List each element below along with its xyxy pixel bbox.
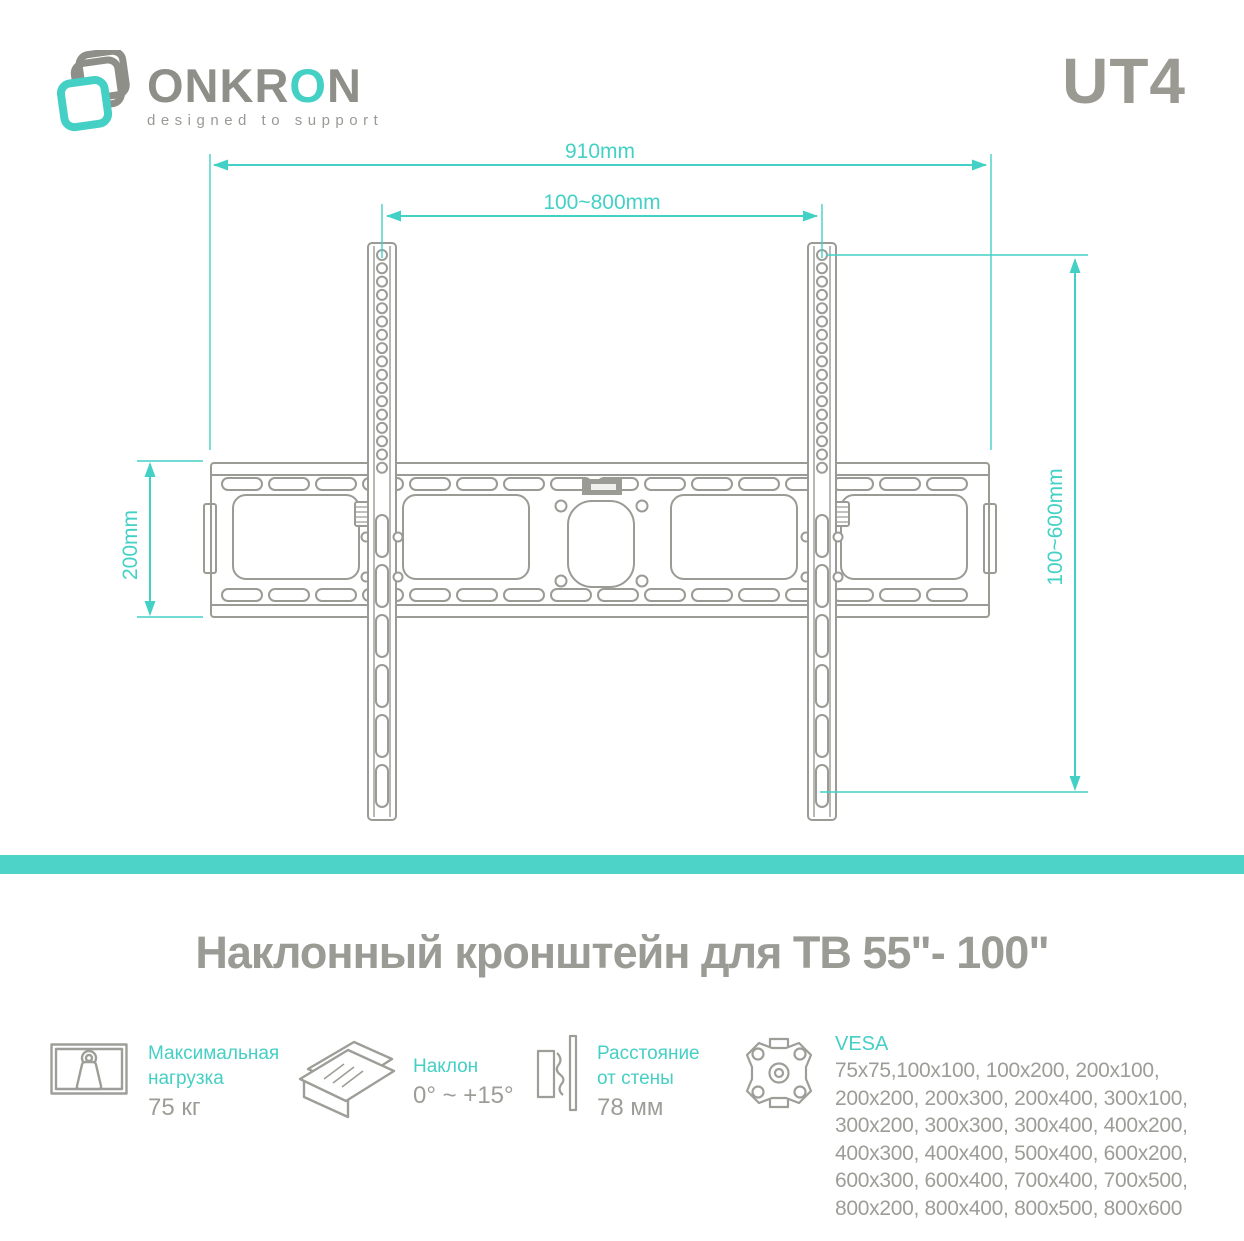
max-load-label: Максимальная нагрузка bbox=[148, 1041, 279, 1091]
wall-distance-label: Расстояние от стены bbox=[597, 1041, 700, 1091]
max-load-value: 75 кг bbox=[148, 1094, 279, 1122]
dim-label-plate-height: 200mm bbox=[119, 510, 142, 580]
tilt-value: 0° ~ +15° bbox=[413, 1082, 514, 1110]
dim-label-total-width: 910mm bbox=[565, 140, 635, 163]
vesa-label: VESA bbox=[835, 1032, 1210, 1056]
product-sheet: ONKRON designed to support UT4 bbox=[0, 0, 1244, 1241]
wall-distance-icon bbox=[536, 1034, 580, 1112]
teal-divider-bar bbox=[0, 855, 1244, 874]
bubble-level bbox=[582, 479, 622, 495]
wall-plate bbox=[204, 463, 996, 617]
vesa-icon bbox=[739, 1035, 819, 1111]
bracket-technical-drawing: 910mm 100~800mm 200mm 100~600mm bbox=[0, 0, 1244, 860]
dim-label-vesa-width: 100~800mm bbox=[543, 191, 660, 214]
tilt-icon bbox=[296, 1033, 398, 1119]
dimension-lines: 910mm 100~800mm 200mm 100~600mm bbox=[119, 140, 1088, 792]
tilt-label: Наклон bbox=[413, 1054, 514, 1079]
vesa-value: 75x75,100x100, 100x200, 200x100, 200x200… bbox=[835, 1057, 1210, 1222]
product-title: Наклонный кронштейн для ТВ 55"- 100" bbox=[0, 928, 1244, 978]
dim-label-vesa-height: 100~600mm bbox=[1044, 468, 1067, 585]
center-opening bbox=[568, 501, 634, 587]
plate-mount-slots bbox=[222, 478, 967, 601]
wall-distance-value: 78 мм bbox=[597, 1094, 700, 1122]
left-vesa-rail bbox=[355, 243, 403, 820]
spec-row: Максимальная нагрузка 75 кг Наклон 0° ~ … bbox=[0, 1020, 1244, 1230]
max-load-icon bbox=[50, 1043, 128, 1095]
